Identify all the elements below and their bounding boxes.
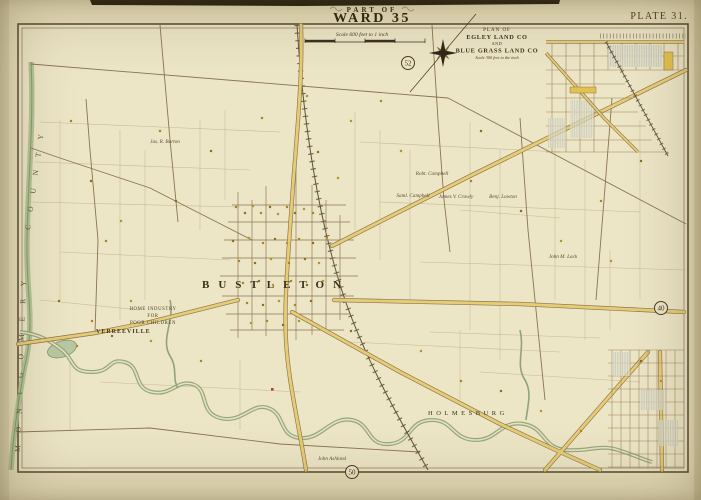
building-dot — [298, 320, 300, 322]
plate-ref-52: 52 — [402, 57, 415, 70]
building-dot — [200, 360, 202, 362]
building-dot — [520, 210, 522, 212]
building-dot — [312, 242, 314, 244]
map-label: John M. Lack — [549, 254, 578, 260]
inset-title-line3: AND — [492, 41, 503, 46]
map-label: FOR — [147, 314, 158, 319]
building-dot — [252, 205, 254, 207]
atlas-map: 524050 BUSTLETONVERREEVILLEHOLMESBURGHOM… — [0, 0, 701, 500]
building-dot — [640, 360, 642, 362]
building-dot — [262, 304, 264, 306]
building-dot — [288, 262, 290, 264]
inset-yellow-block — [664, 52, 673, 70]
map-label: HOLMESBURG — [428, 410, 508, 417]
building-dot — [58, 300, 60, 302]
building-dot — [105, 240, 107, 242]
building-dot — [269, 206, 271, 208]
map-label: John Ashland — [318, 456, 347, 462]
map-label: HOME INDUSTRY — [129, 307, 176, 312]
building-dot — [298, 238, 300, 240]
map-label: POOR CHILDREN — [130, 321, 176, 326]
building-dot — [210, 150, 212, 152]
building-dot — [277, 213, 279, 215]
map-label: Robt. Campbell — [415, 171, 449, 177]
building-dot — [248, 237, 250, 239]
building-dot — [580, 430, 582, 432]
inset-yellow-block — [570, 87, 596, 93]
building-dot — [260, 212, 262, 214]
hatched-block — [640, 390, 666, 410]
building-dot — [380, 100, 382, 102]
map-label: James V. Crawly — [439, 194, 474, 200]
building-dot — [600, 200, 602, 202]
building-dot — [318, 262, 320, 264]
map-label: Saml. Campbell — [396, 193, 430, 199]
building-dot — [238, 260, 240, 262]
building-dot — [540, 410, 542, 412]
building-dot — [261, 117, 263, 119]
svg-text:40: 40 — [658, 304, 666, 312]
building-dot — [235, 206, 237, 208]
atlas-page-scan: 524050 BUSTLETONVERREEVILLEHOLMESBURGHOM… — [0, 0, 701, 500]
scale-note: Scale 600 feet to 1 inch — [336, 31, 389, 38]
building-dot — [350, 330, 352, 332]
building-dot — [282, 324, 284, 326]
building-dot — [294, 304, 296, 306]
church-dot — [271, 388, 274, 391]
inset-title-line4: BLUE GRASS LAND CO — [456, 48, 539, 55]
plate-ref-40: 40 — [655, 302, 668, 315]
building-dot — [270, 258, 272, 260]
map-label: Jas. R. Barton — [150, 139, 180, 145]
building-dot — [326, 238, 328, 240]
building-dot — [350, 120, 352, 122]
building-dot — [610, 260, 612, 262]
building-dot — [70, 120, 72, 122]
hatched-block — [658, 420, 678, 446]
building-dot — [262, 242, 264, 244]
building-dot — [460, 380, 462, 382]
building-dot — [310, 300, 312, 302]
building-dot — [480, 130, 482, 132]
building-dot — [244, 212, 246, 214]
building-dot — [306, 95, 308, 97]
svg-text:52: 52 — [405, 59, 413, 67]
building-dot — [337, 177, 339, 179]
map-label: BUSTLETON — [202, 279, 350, 291]
building-dot — [312, 212, 314, 214]
building-dot — [274, 238, 276, 240]
page-edge-right — [694, 0, 701, 500]
plate-ref-50: 50 — [346, 466, 359, 479]
building-dot — [500, 390, 502, 392]
building-dot — [660, 380, 662, 382]
page-edge-left — [0, 0, 9, 500]
building-dot — [232, 240, 234, 242]
building-dot — [175, 200, 177, 202]
building-dot — [294, 212, 296, 214]
inset-hatched-block — [608, 45, 662, 67]
building-dot — [266, 320, 268, 322]
building-dot — [470, 180, 472, 182]
building-dot — [560, 240, 562, 242]
building-dot — [76, 345, 78, 347]
inset-scale-note: Scale 300 feet to the inch — [475, 55, 518, 60]
building-dot — [120, 220, 122, 222]
map-label: Benj. Lawton — [489, 194, 517, 200]
plate-number: PLATE 31. — [630, 11, 688, 22]
building-dot — [278, 300, 280, 302]
ward-title: WARD 35 — [333, 11, 411, 26]
building-dot — [420, 350, 422, 352]
inset-hatched-block — [548, 118, 566, 148]
building-dot — [640, 160, 642, 162]
building-dot — [317, 151, 319, 153]
inset-title-line1: PLAN OF — [483, 28, 511, 33]
building-dot — [130, 300, 132, 302]
building-dot — [159, 130, 161, 132]
inset-title-line2: EGLEY LAND CO — [466, 34, 527, 41]
building-dot — [303, 208, 305, 210]
building-dot — [90, 180, 92, 182]
building-dot — [400, 150, 402, 152]
map-label: VERREEVILLE — [96, 329, 151, 335]
hatched-block — [612, 352, 630, 376]
building-dot — [304, 258, 306, 260]
building-dot — [286, 206, 288, 208]
svg-text:50: 50 — [349, 468, 357, 476]
inset-hatched-block — [570, 100, 594, 138]
building-dot — [91, 320, 93, 322]
building-dot — [250, 322, 252, 324]
building-dot — [246, 302, 248, 304]
building-dot — [111, 335, 113, 337]
building-dot — [150, 340, 152, 342]
building-dot — [286, 242, 288, 244]
building-dot — [254, 262, 256, 264]
